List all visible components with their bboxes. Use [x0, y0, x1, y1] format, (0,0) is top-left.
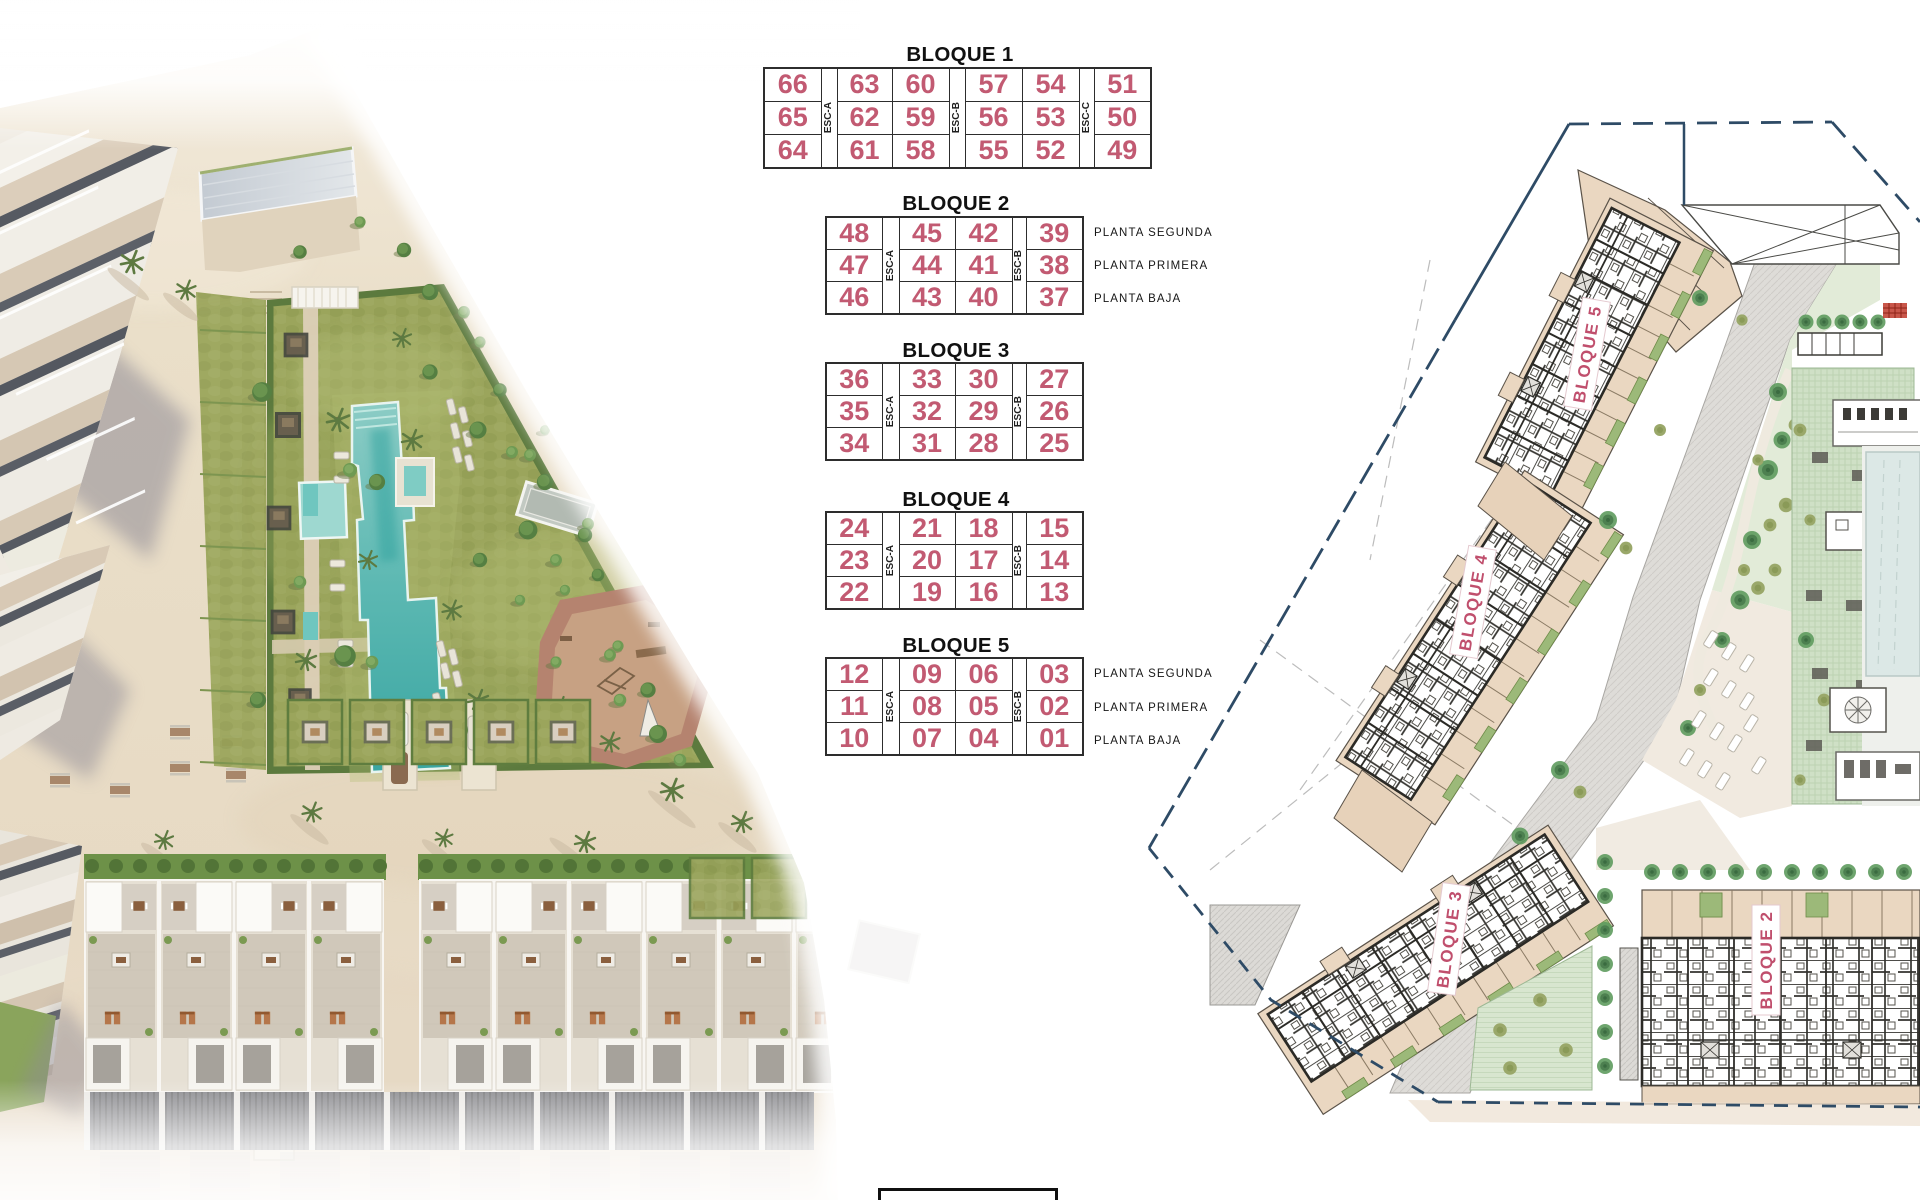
svg-text:BLOQUE 2: BLOQUE 2	[1757, 911, 1776, 1010]
